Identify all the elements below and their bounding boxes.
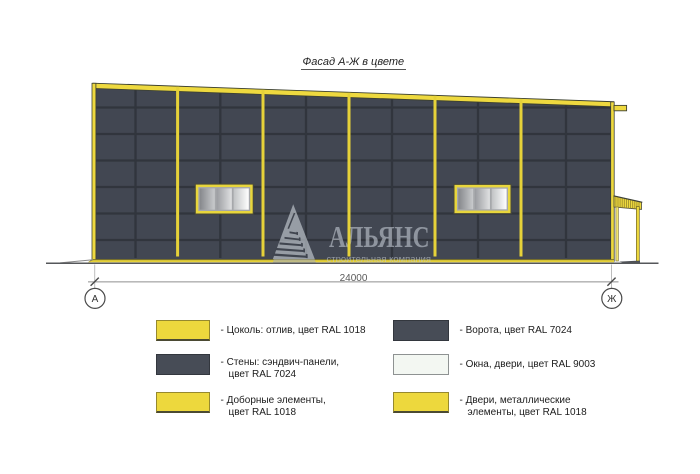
svg-text:А: А: [92, 294, 99, 305]
svg-text:Ж: Ж: [607, 294, 617, 305]
svg-text:24000: 24000: [340, 273, 368, 284]
svg-text:АЛЬЯНС: АЛЬЯНС: [329, 220, 430, 254]
